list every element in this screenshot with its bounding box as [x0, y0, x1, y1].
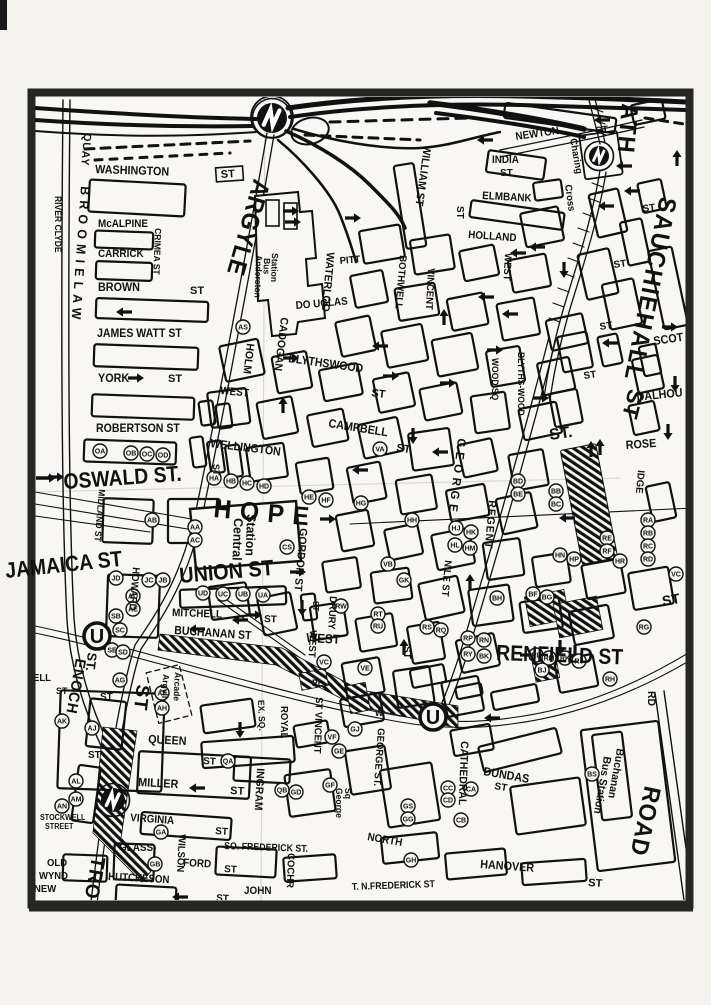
svg-text:HD: HD: [259, 484, 269, 491]
svg-text:QB: QB: [277, 788, 288, 795]
svg-text:OA: OA: [95, 449, 106, 456]
svg-text:ST: ST: [493, 781, 507, 794]
svg-text:RD: RD: [643, 557, 653, 564]
svg-text:CC: CC: [443, 786, 453, 793]
svg-text:VC: VC: [671, 572, 681, 579]
svg-text:ST: ST: [661, 590, 682, 609]
svg-text:RH: RH: [605, 677, 615, 684]
svg-text:OLD: OLD: [47, 858, 67, 869]
svg-text:CATHEDRAL: CATHEDRAL: [456, 741, 471, 806]
svg-text:RE: RE: [602, 536, 612, 543]
svg-text:HF: HF: [321, 498, 331, 505]
svg-text:VF: VF: [328, 735, 338, 742]
svg-text:ST: ST: [500, 168, 513, 179]
svg-text:JAMES WATT ST: JAMES WATT ST: [97, 327, 182, 340]
svg-text:Station: Station: [242, 514, 258, 556]
svg-text:CS: CS: [282, 545, 292, 552]
svg-text:OB: OB: [126, 451, 137, 458]
svg-text:JC: JC: [145, 578, 154, 585]
svg-text:HB: HB: [226, 479, 236, 486]
svg-text:PITT: PITT: [339, 254, 361, 267]
svg-text:BROWN: BROWN: [98, 282, 140, 295]
svg-text:CB: CB: [456, 818, 466, 825]
svg-text:AL: AL: [71, 779, 81, 786]
svg-text:OD: OD: [158, 453, 169, 460]
svg-text:CARRICK: CARRICK: [98, 249, 144, 261]
svg-text:U: U: [426, 707, 440, 729]
svg-text:UA: UA: [258, 593, 268, 600]
svg-text:BB: BB: [551, 489, 561, 496]
svg-text:CD: CD: [443, 798, 453, 805]
svg-text:RY: RY: [463, 652, 473, 659]
svg-text:UD: UD: [198, 591, 208, 598]
svg-text:AH: AH: [157, 706, 167, 713]
svg-text:BF: BF: [528, 592, 538, 599]
svg-text:INDIA: INDIA: [492, 155, 519, 167]
svg-text:WYND: WYND: [39, 871, 68, 882]
svg-text:VB: VB: [383, 562, 393, 569]
svg-text:GE: GE: [334, 749, 344, 756]
svg-text:GH: GH: [406, 858, 417, 865]
svg-text:ATH: ATH: [612, 103, 643, 156]
svg-text:HN: HN: [555, 553, 565, 560]
svg-text:HR: HR: [615, 559, 625, 566]
svg-text:U: U: [90, 626, 104, 648]
svg-text:HH: HH: [407, 518, 417, 525]
svg-text:MITCHELL: MITCHELL: [172, 608, 223, 621]
svg-text:RG: RG: [639, 625, 650, 632]
svg-text:ST.: ST.: [548, 424, 573, 444]
svg-text:MILLER: MILLER: [138, 777, 179, 792]
svg-text:WEST: WEST: [306, 630, 341, 646]
svg-text:YORK: YORK: [98, 373, 130, 386]
svg-text:ST: ST: [642, 202, 656, 215]
svg-text:ELL: ELL: [33, 673, 51, 684]
svg-text:HC: HC: [242, 481, 252, 488]
svg-text:ST: ST: [224, 864, 237, 876]
svg-text:RC: RC: [643, 544, 653, 551]
svg-text:SC: SC: [115, 628, 125, 635]
svg-text:AB: AB: [147, 518, 157, 525]
svg-text:ST: ST: [371, 387, 387, 401]
svg-text:RQ: RQ: [436, 628, 447, 635]
svg-text:ST: ST: [56, 686, 68, 696]
svg-text:AS: AS: [238, 325, 248, 332]
svg-text:VA: VA: [375, 447, 384, 454]
svg-text:ST: ST: [220, 168, 235, 181]
svg-text:INGRAM: INGRAM: [252, 768, 267, 811]
svg-text:BH: BH: [492, 596, 502, 603]
svg-text:HL: HL: [450, 543, 460, 550]
svg-text:QUEEN: QUEEN: [148, 734, 187, 749]
svg-text:BS: BS: [587, 772, 597, 779]
svg-text:ST: ST: [311, 601, 320, 611]
svg-text:ST: ST: [595, 124, 609, 137]
svg-text:UC: UC: [218, 592, 228, 599]
svg-text:George: George: [334, 788, 344, 818]
svg-text:ST: ST: [454, 206, 465, 219]
svg-text:RS: RS: [422, 625, 432, 632]
svg-text:RA: RA: [643, 518, 653, 525]
svg-text:NEW: NEW: [34, 884, 57, 895]
svg-text:HM: HM: [465, 546, 476, 553]
svg-text:RP: RP: [463, 636, 473, 643]
svg-text:AA: AA: [190, 525, 200, 532]
svg-text:ST: ST: [613, 258, 627, 271]
svg-text:BC: BC: [551, 502, 561, 509]
svg-text:JB: JB: [159, 578, 168, 585]
svg-text:BLYTHS-WOOD: BLYTHS-WOOD: [516, 352, 526, 416]
svg-text:BG: BG: [542, 595, 553, 602]
svg-text:RB: RB: [643, 531, 653, 538]
svg-text:RU: RU: [373, 624, 383, 631]
svg-text:AC: AC: [190, 538, 200, 545]
svg-text:GA: GA: [156, 830, 167, 837]
svg-text:CRIMEA ST: CRIMEA ST: [151, 228, 163, 276]
svg-text:RENFIELD ST: RENFIELD ST: [496, 641, 624, 670]
svg-text:ST: ST: [203, 756, 216, 768]
svg-text:McALPINE: McALPINE: [98, 219, 148, 231]
svg-text:ST: ST: [190, 285, 204, 297]
svg-text:HK: HK: [466, 530, 476, 537]
svg-text:ST: ST: [215, 826, 229, 838]
svg-text:BK: BK: [479, 654, 489, 661]
svg-text:Arcade: Arcade: [171, 672, 183, 702]
svg-text:DRURY: DRURY: [325, 596, 338, 630]
svg-text:GLASS-: GLASS-: [119, 843, 157, 855]
svg-text:COCHR: COCHR: [284, 853, 296, 888]
svg-text:ST: ST: [588, 877, 603, 890]
svg-text:VC: VC: [319, 660, 329, 667]
svg-text:VE: VE: [360, 666, 370, 673]
svg-text:STREET: STREET: [45, 822, 74, 831]
svg-text:SD: SD: [118, 650, 128, 657]
svg-text:WASHINGTON: WASHINGTON: [95, 164, 170, 179]
svg-text:HE: HE: [304, 495, 314, 502]
svg-text:ROSE: ROSE: [625, 437, 657, 452]
svg-text:AJ: AJ: [88, 726, 97, 733]
svg-text:AG: AG: [115, 678, 126, 685]
svg-text:ST: ST: [264, 614, 277, 625]
svg-text:SB: SB: [111, 614, 121, 621]
svg-text:JOHN: JOHN: [244, 886, 271, 898]
svg-text:ST: ST: [583, 369, 597, 382]
svg-text:UB: UB: [238, 592, 248, 599]
svg-text:QA: QA: [223, 759, 234, 766]
svg-text:ST: ST: [599, 320, 613, 333]
svg-text:ST VINCENT: ST VINCENT: [311, 697, 324, 754]
svg-text:FORD: FORD: [183, 858, 212, 871]
svg-text:ST: ST: [396, 442, 412, 456]
svg-text:W.: W.: [375, 708, 385, 718]
svg-text:BD: BD: [513, 479, 523, 486]
svg-text:HP: HP: [569, 557, 579, 564]
svg-text:GG: GG: [403, 817, 414, 824]
svg-text:GD: GD: [291, 790, 302, 797]
svg-text:IDGE: IDGE: [633, 470, 646, 495]
svg-text:WEST: WEST: [500, 253, 513, 281]
svg-text:ST: ST: [401, 646, 412, 659]
svg-text:PL.: PL.: [312, 678, 325, 688]
svg-text:GJ: GJ: [350, 727, 359, 734]
svg-text:RIVER CLYDE: RIVER CLYDE: [53, 196, 63, 253]
svg-text:RN: RN: [479, 638, 489, 645]
svg-text:ROYAL: ROYAL: [278, 706, 289, 738]
svg-text:RF: RF: [602, 549, 612, 556]
svg-text:HA: HA: [209, 476, 219, 483]
svg-text:GK: GK: [399, 578, 410, 585]
svg-text:AM: AM: [71, 797, 82, 804]
svg-text:ST: ST: [88, 750, 101, 761]
svg-text:WOOD SQ: WOOD SQ: [490, 358, 500, 400]
svg-text:RT: RT: [373, 612, 383, 619]
svg-text:GS: GS: [403, 804, 413, 811]
svg-text:VINCENT: VINCENT: [423, 268, 436, 310]
svg-text:RD: RD: [645, 691, 657, 706]
svg-text:ROBERTSON ST: ROBERTSON ST: [96, 422, 180, 435]
svg-text:BE: BE: [513, 492, 523, 499]
svg-text:HG: HG: [356, 501, 367, 508]
svg-text:ST: ST: [230, 785, 245, 798]
svg-text:AK: AK: [57, 719, 67, 726]
svg-text:ST: ST: [100, 692, 113, 703]
svg-text:BJ: BJ: [538, 668, 547, 675]
svg-text:HJ: HJ: [452, 526, 461, 533]
svg-text:JD: JD: [112, 576, 121, 583]
svg-text:Sq: Sq: [343, 788, 353, 799]
svg-text:EX. SQ.: EX. SQ.: [256, 700, 267, 731]
svg-text:ST: ST: [129, 683, 153, 712]
svg-text:Station: Station: [269, 253, 280, 282]
svg-text:AN: AN: [57, 804, 67, 811]
svg-text:ST: ST: [168, 373, 182, 385]
svg-text:OC: OC: [142, 452, 153, 459]
svg-text:GB: GB: [150, 862, 161, 869]
svg-text:ST: ST: [211, 464, 221, 476]
svg-text:Argyll: Argyll: [160, 674, 172, 699]
svg-text:WILSON: WILSON: [174, 834, 187, 873]
